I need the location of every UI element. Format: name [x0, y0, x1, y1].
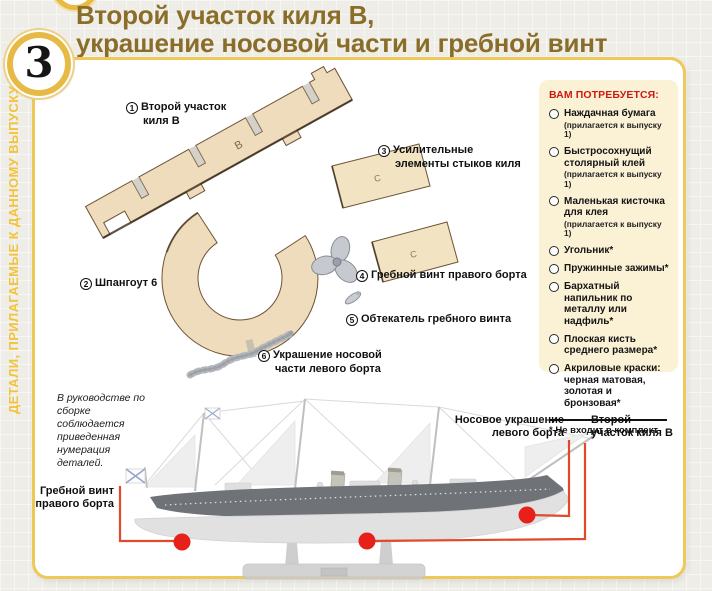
callout-lines — [120, 440, 585, 541]
part-number-3: 3 — [378, 145, 390, 157]
part-number-1: 1 — [126, 102, 138, 114]
page-title-line2: украшение носовой части и гребной винт — [76, 29, 712, 57]
circle-bullet-icon — [549, 109, 559, 119]
you-will-need-panel: ВАМ ПОТРЕБУЕТСЯ: Наждачная бумага (прила… — [539, 80, 678, 372]
magazine-page: Второй участок киля B, украшение носовой… — [0, 0, 712, 591]
part-label-6-text: Украшение носовой — [273, 349, 382, 361]
circle-bullet-icon — [549, 147, 559, 157]
circle-bullet-icon — [549, 334, 559, 344]
circle-bullet-icon — [549, 282, 559, 292]
part-label-1-text2: киля B — [126, 115, 226, 129]
part-number-2: 2 — [80, 278, 92, 290]
side-strip-label: ДЕТАЛИ, ПРИЛАГАЕМЫЕ К ДАННОМУ ВЫПУСКУ — [6, 94, 21, 414]
part-label-3-text2: элементы стыков киля — [378, 158, 521, 172]
part-number-5: 5 — [346, 314, 358, 326]
required-item-2-text: Быстросохнущий столярный клей — [564, 146, 670, 169]
required-item-1: Наждачная бумага (прилагается к выпуску … — [549, 108, 670, 140]
keel-section-part: B — [82, 62, 356, 245]
part-label-4: 4Гребной винт правого борта — [356, 269, 527, 283]
required-item-1-text: Наждачная бумага — [564, 108, 670, 120]
callout-label-bow-decoration: Носовое украшение левого борта — [450, 414, 564, 439]
part-label-6-text2: части левого борта — [258, 363, 382, 377]
part-label-2-text: Шпангоут 6 — [95, 277, 157, 289]
required-item-2: Быстросохнущий столярный клей (прилагает… — [549, 146, 670, 189]
part-label-4-text: Гребной винт правого борта — [371, 269, 527, 281]
required-item-6: Бархатный напильник по металлу или надфи… — [549, 281, 670, 327]
required-item-3-text: Маленькая кисточка для клея — [564, 196, 670, 219]
required-item-1-note: (прилагается к выпуску 1) — [564, 121, 670, 140]
required-item-7-text: Плоская кисть среднего размера* — [564, 334, 670, 357]
circle-bullet-icon — [549, 264, 559, 274]
callout-label-propeller: Гребной винт правого борта — [26, 485, 114, 510]
circle-bullet-icon — [549, 246, 559, 256]
part-label-3: 3Усилительные элементы стыков киля — [378, 144, 521, 171]
required-item-7: Плоская кисть среднего размера* — [549, 334, 670, 357]
part-label-6: 6Украшение носовой части левого борта — [258, 349, 382, 376]
callout-dots — [174, 507, 536, 551]
part-label-1: 1Второй участок киля B — [126, 101, 226, 128]
callout-label-keel-section: Второй участок киля B — [591, 414, 673, 439]
page-title: Второй участок киля B, украшение носовой… — [76, 1, 712, 57]
fairing-part — [344, 290, 363, 306]
required-item-3: Маленькая кисточка для клея (прилагается… — [549, 196, 670, 239]
required-item-2-note: (прилагается к выпуску 1) — [564, 170, 670, 189]
part-number-4: 4 — [356, 270, 368, 282]
required-item-5: Пружинные зажимы* — [549, 263, 670, 275]
required-item-6-text: Бархатный напильник по металлу или надфи… — [564, 281, 670, 327]
frame-part — [147, 208, 327, 371]
you-will-need-title: ВАМ ПОТРЕБУЕТСЯ: — [549, 89, 670, 101]
required-item-5-text: Пружинные зажимы* — [564, 263, 669, 275]
part-label-5: 5Обтекатель гребного винта — [346, 313, 511, 327]
part-label-3-text: Усилительные — [393, 144, 473, 156]
circle-bullet-icon — [549, 196, 559, 206]
part-label-5-text: Обтекатель гребного винта — [361, 313, 511, 325]
required-item-4: Угольник* — [549, 245, 670, 257]
page-title-line1: Второй участок киля B, — [76, 1, 712, 29]
part-label-2: 2Шпангоут 6 — [80, 277, 157, 291]
required-item-3-note: (прилагается к выпуску 1) — [564, 220, 670, 239]
circle-bullet-icon — [549, 364, 559, 374]
part-number-6: 6 — [258, 350, 270, 362]
required-item-4-text: Угольник* — [564, 245, 613, 257]
part-label-1-text: Второй участок — [141, 101, 226, 113]
